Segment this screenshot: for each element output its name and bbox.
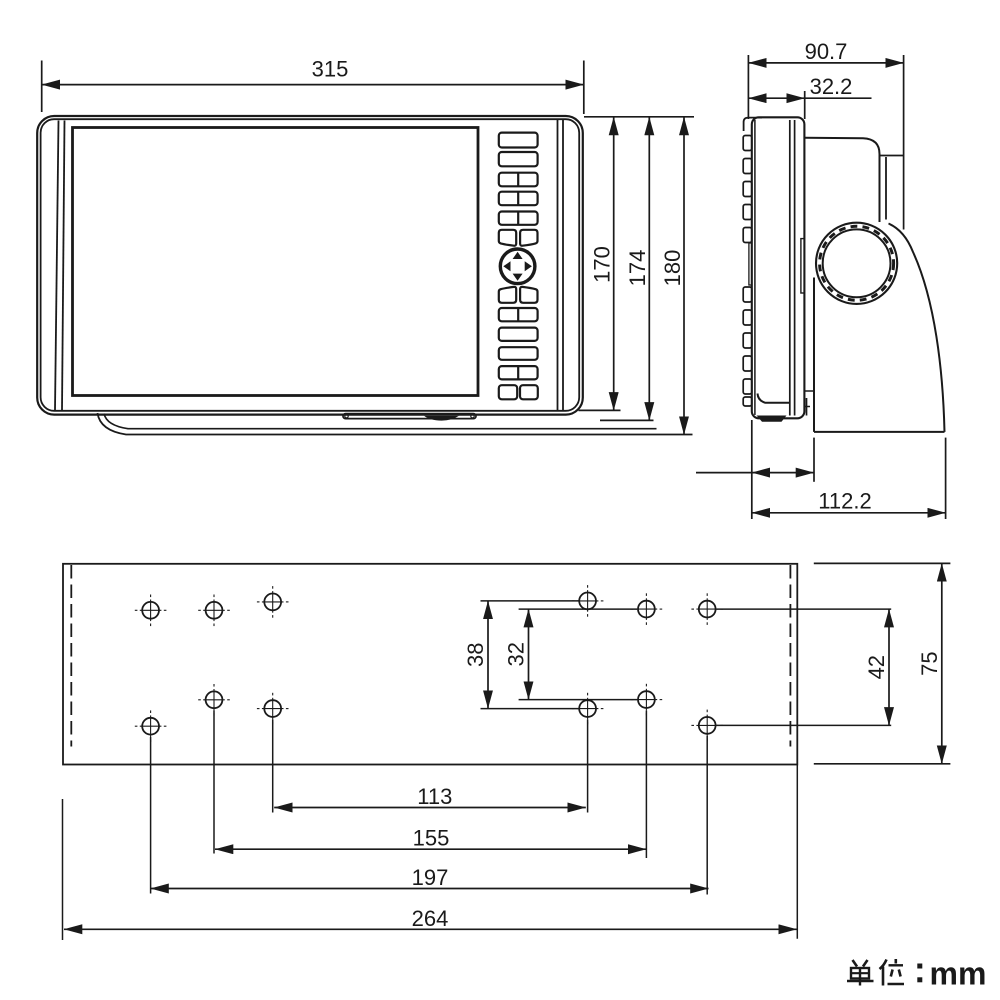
svg-text:32.2: 32.2 <box>810 74 853 99</box>
svg-text:mm: mm <box>930 956 987 992</box>
svg-text:197: 197 <box>412 865 449 890</box>
svg-text:180: 180 <box>660 250 685 287</box>
svg-text:174: 174 <box>625 250 650 287</box>
svg-text:32: 32 <box>504 642 529 666</box>
svg-text:315: 315 <box>312 57 349 82</box>
svg-text:90.7: 90.7 <box>805 39 848 64</box>
svg-text:170: 170 <box>590 246 615 283</box>
svg-text:112.2: 112.2 <box>818 489 871 514</box>
svg-text:75: 75 <box>917 651 942 675</box>
svg-text:264: 264 <box>412 906 449 931</box>
svg-text:113: 113 <box>417 784 452 809</box>
svg-text:155: 155 <box>413 826 450 851</box>
svg-text:42: 42 <box>864 655 889 679</box>
svg-text:38: 38 <box>463 643 488 667</box>
